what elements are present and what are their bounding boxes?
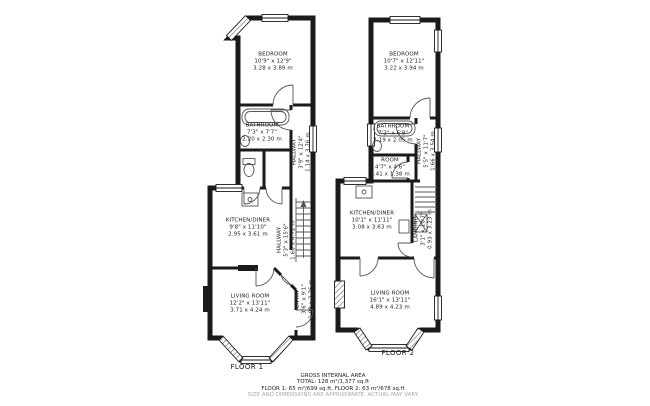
room-name: BATHROOM [242, 123, 282, 130]
room-label-f2-kitchen: KITCHEN/DINER 10'1" x 11'11" 3.08 x 3.63… [350, 211, 394, 232]
room-size-metric: 3.22 x 3.94 m [384, 65, 425, 72]
room-size-imperial: 3'1" x 10'7" [421, 209, 428, 249]
room-name: KITCHEN/DINER [350, 211, 394, 218]
room-size-imperial: 3'6" x 9'1" [302, 279, 309, 319]
room-size-imperial: 9'8" x 11'10" [226, 225, 270, 232]
room-size-imperial: 7'3" x 7'7" [242, 130, 282, 137]
hatched-window [335, 281, 345, 308]
room-size-metric: 1.60 x 4.72 m [290, 220, 297, 260]
room-label-f2-bathroom: BATHROOM 7'2" x 6'9" 2.19 x 2.05 m [373, 124, 413, 145]
room-size-imperial: 10'1" x 11'11" [350, 218, 394, 225]
floor1-chimney [203, 286, 212, 312]
floor2-caption: FLOOR 2 [381, 349, 414, 357]
room-size-metric: 2.19 x 2.05 m [373, 137, 413, 144]
room-name: ENTRY [295, 279, 302, 319]
room-size-imperial: 5'5" x 11'7" [424, 131, 431, 171]
room-size-metric: 1.14 x 3.76 m [305, 132, 312, 172]
room-label-f2-landing: LANDING 3'1" x 10'7" 0.93 x 3.23 m [414, 209, 435, 249]
room-size-metric: 3.28 x 3.89 m [253, 65, 293, 72]
room-size-imperial: 7'2" x 6'9" [373, 131, 413, 138]
gross-internal-area-note: GROSS INTERNAL AREA TOTAL: 128 m²/1,377 … [248, 373, 418, 399]
room-name: HALLWAY [277, 220, 284, 260]
room-label-f2-room: ROOM 4'7" x 4'6" 1.41 x 1.38 m [370, 158, 410, 179]
room-label-f1-hallway-upper: HALLWAY 3'9" x 12'4" 1.14 x 3.76 m [292, 132, 313, 172]
room-name: LANDING [414, 209, 421, 249]
room-size-metric: 2.95 x 3.61 m [226, 231, 270, 238]
room-size-metric: 1.41 x 1.38 m [370, 171, 410, 178]
room-label-f1-entry: ENTRY 3'6" x 9'1" 1.08 x 2.76 m [295, 279, 316, 319]
room-name: HALLWAY [292, 132, 299, 172]
room-size-imperial: 5'3" x 15'6" [284, 220, 291, 260]
room-name: LIVING ROOM [230, 294, 271, 301]
floor1-caption: FLOOR 1 [230, 363, 263, 371]
room-size-metric: 3.71 x 4.24 m [230, 307, 271, 314]
room-name: ROOM [370, 158, 410, 165]
floorplan-drawing [0, 0, 650, 406]
room-label-f2-bedroom: BEDROOM 10'7" x 12'11" 3.22 x 3.94 m [384, 52, 425, 73]
floorplan-canvas: BEDROOM 10'9" x 12'9" 3.28 x 3.89 m BATH… [0, 0, 650, 406]
room-label-f2-living: LIVING ROOM 16'1" x 13'11" 4.89 x 4.23 m [370, 291, 411, 312]
room-name: BEDROOM [384, 52, 425, 59]
room-size-imperial: 4'7" x 4'6" [370, 165, 410, 172]
room-size-metric: 2.20 x 2.30 m [242, 136, 282, 143]
room-label-f2-hallway: HALLWAY 5'5" x 11'7" 1.66 x 3.54 m [417, 131, 438, 171]
room-size-imperial: 16'1" x 13'11" [370, 298, 411, 305]
room-label-f1-bathroom: BATHROOM 7'3" x 7'7" 2.20 x 2.30 m [242, 123, 282, 144]
room-label-f1-living: LIVING ROOM 12'2" x 13'11" 3.71 x 4.24 m [230, 294, 271, 315]
footer-disclaimer: SIZE AND DIMENSIONS ARE APPROXIMATE, ACT… [248, 392, 418, 398]
room-size-imperial: 12'2" x 13'11" [230, 301, 271, 308]
room-size-imperial: 10'9" x 12'9" [253, 59, 293, 66]
room-size-metric: 1.66 x 3.54 m [430, 131, 437, 171]
room-name: HALLWAY [417, 131, 424, 171]
room-label-f1-kitchen: KITCHEN/DINER 9'8" x 11'10" 2.95 x 3.61 … [226, 218, 270, 239]
room-name: KITCHEN/DINER [226, 218, 270, 225]
room-name: LIVING ROOM [370, 291, 411, 298]
room-name: BATHROOM [373, 124, 413, 131]
room-size-imperial: 10'7" x 12'11" [384, 59, 425, 66]
room-label-f1-bedroom: BEDROOM 10'9" x 12'9" 3.28 x 3.89 m [253, 52, 293, 73]
room-size-metric: 3.08 x 3.63 m [350, 224, 394, 231]
room-name: BEDROOM [253, 52, 293, 59]
room-size-metric: 4.89 x 4.23 m [370, 304, 411, 311]
room-size-metric: 0.93 x 3.23 m [427, 209, 434, 249]
room-size-metric: 1.08 x 2.76 m [308, 279, 315, 319]
room-size-imperial: 3'9" x 12'4" [299, 132, 306, 172]
room-label-f1-hallway-lower: HALLWAY 5'3" x 15'6" 1.60 x 4.72 m [277, 220, 298, 260]
